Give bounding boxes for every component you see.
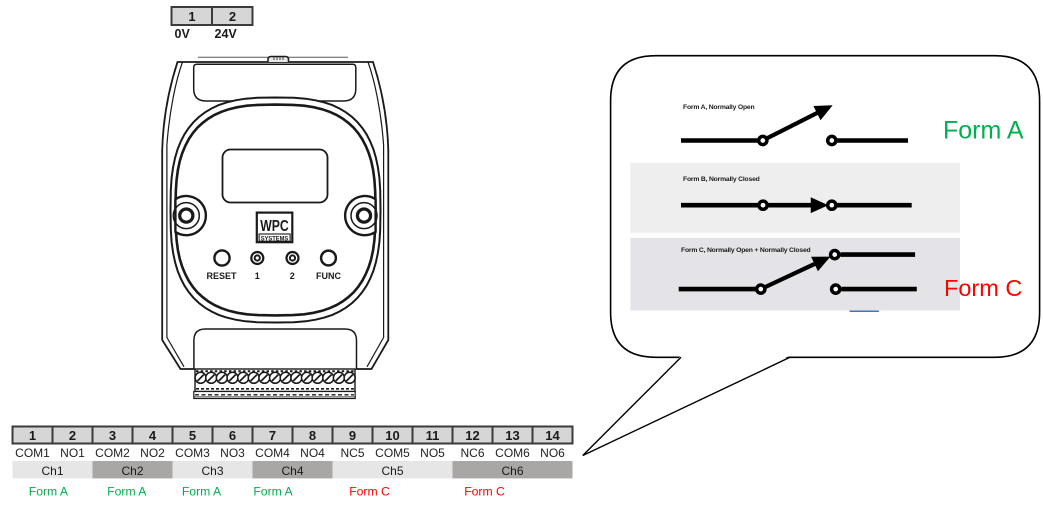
svg-text:13: 13 [505,428,519,443]
svg-text:NC5: NC5 [340,446,364,460]
svg-text:NO4: NO4 [300,446,325,460]
svg-text:Form C: Form C [944,275,1022,301]
svg-text:Ch4: Ch4 [281,464,303,478]
svg-text:Ch1: Ch1 [41,464,63,478]
svg-text:7: 7 [269,428,276,443]
svg-text:Ch3: Ch3 [201,464,223,478]
svg-text:Form A: Form A [253,485,293,499]
svg-text:NC6: NC6 [460,446,484,460]
svg-text:5: 5 [189,428,196,443]
svg-text:Form A, Normally Open: Form A, Normally Open [683,104,755,111]
svg-text:6: 6 [229,428,236,443]
svg-text:10: 10 [385,428,399,443]
svg-text:14: 14 [545,428,560,443]
svg-text:Form B, Normally Closed: Form B, Normally Closed [683,176,760,183]
svg-text:NO5: NO5 [420,446,445,460]
svg-text:0V: 0V [175,27,191,41]
svg-text:NO6: NO6 [540,446,565,460]
svg-text:Form C, Normally Open + Normal: Form C, Normally Open + Normally Closed [681,247,811,254]
svg-text:COM4: COM4 [255,446,290,460]
svg-text:4: 4 [149,428,157,443]
svg-text:9: 9 [349,428,356,443]
svg-text:Form A: Form A [943,117,1024,145]
svg-text:NO1: NO1 [60,446,85,460]
svg-text:Form C: Form C [349,485,390,499]
svg-text:NO2: NO2 [140,446,165,460]
svg-text:Ch2: Ch2 [121,464,143,478]
svg-text:Ch5: Ch5 [381,464,403,478]
svg-text:3: 3 [109,428,116,443]
svg-text:11: 11 [426,428,440,443]
svg-text:SYSTEMS: SYSTEMS [261,235,289,242]
svg-text:FUNC: FUNC [316,271,341,281]
svg-text:12: 12 [465,428,479,443]
svg-text:WPC: WPC [260,218,289,235]
svg-text:Form A: Form A [29,485,69,499]
svg-text:COM2: COM2 [95,446,130,460]
svg-text:RESET: RESET [206,271,237,281]
svg-text:2: 2 [290,271,295,281]
svg-text:COM6: COM6 [495,446,530,460]
svg-text:COM3: COM3 [175,446,210,460]
svg-text:24V: 24V [215,27,238,41]
svg-text:1: 1 [29,428,36,443]
svg-text:1: 1 [188,9,195,24]
svg-text:2: 2 [69,428,76,443]
svg-text:Form A: Form A [182,485,222,499]
svg-text:8: 8 [309,428,316,443]
svg-text:COM5: COM5 [375,446,410,460]
svg-text:NO3: NO3 [220,446,245,460]
svg-text:Ch6: Ch6 [501,464,523,478]
svg-text:Form C: Form C [464,485,505,499]
svg-text:COM1: COM1 [15,446,50,460]
svg-text:1: 1 [255,271,260,281]
svg-text:2: 2 [229,9,236,24]
svg-text:Form A: Form A [107,485,147,499]
